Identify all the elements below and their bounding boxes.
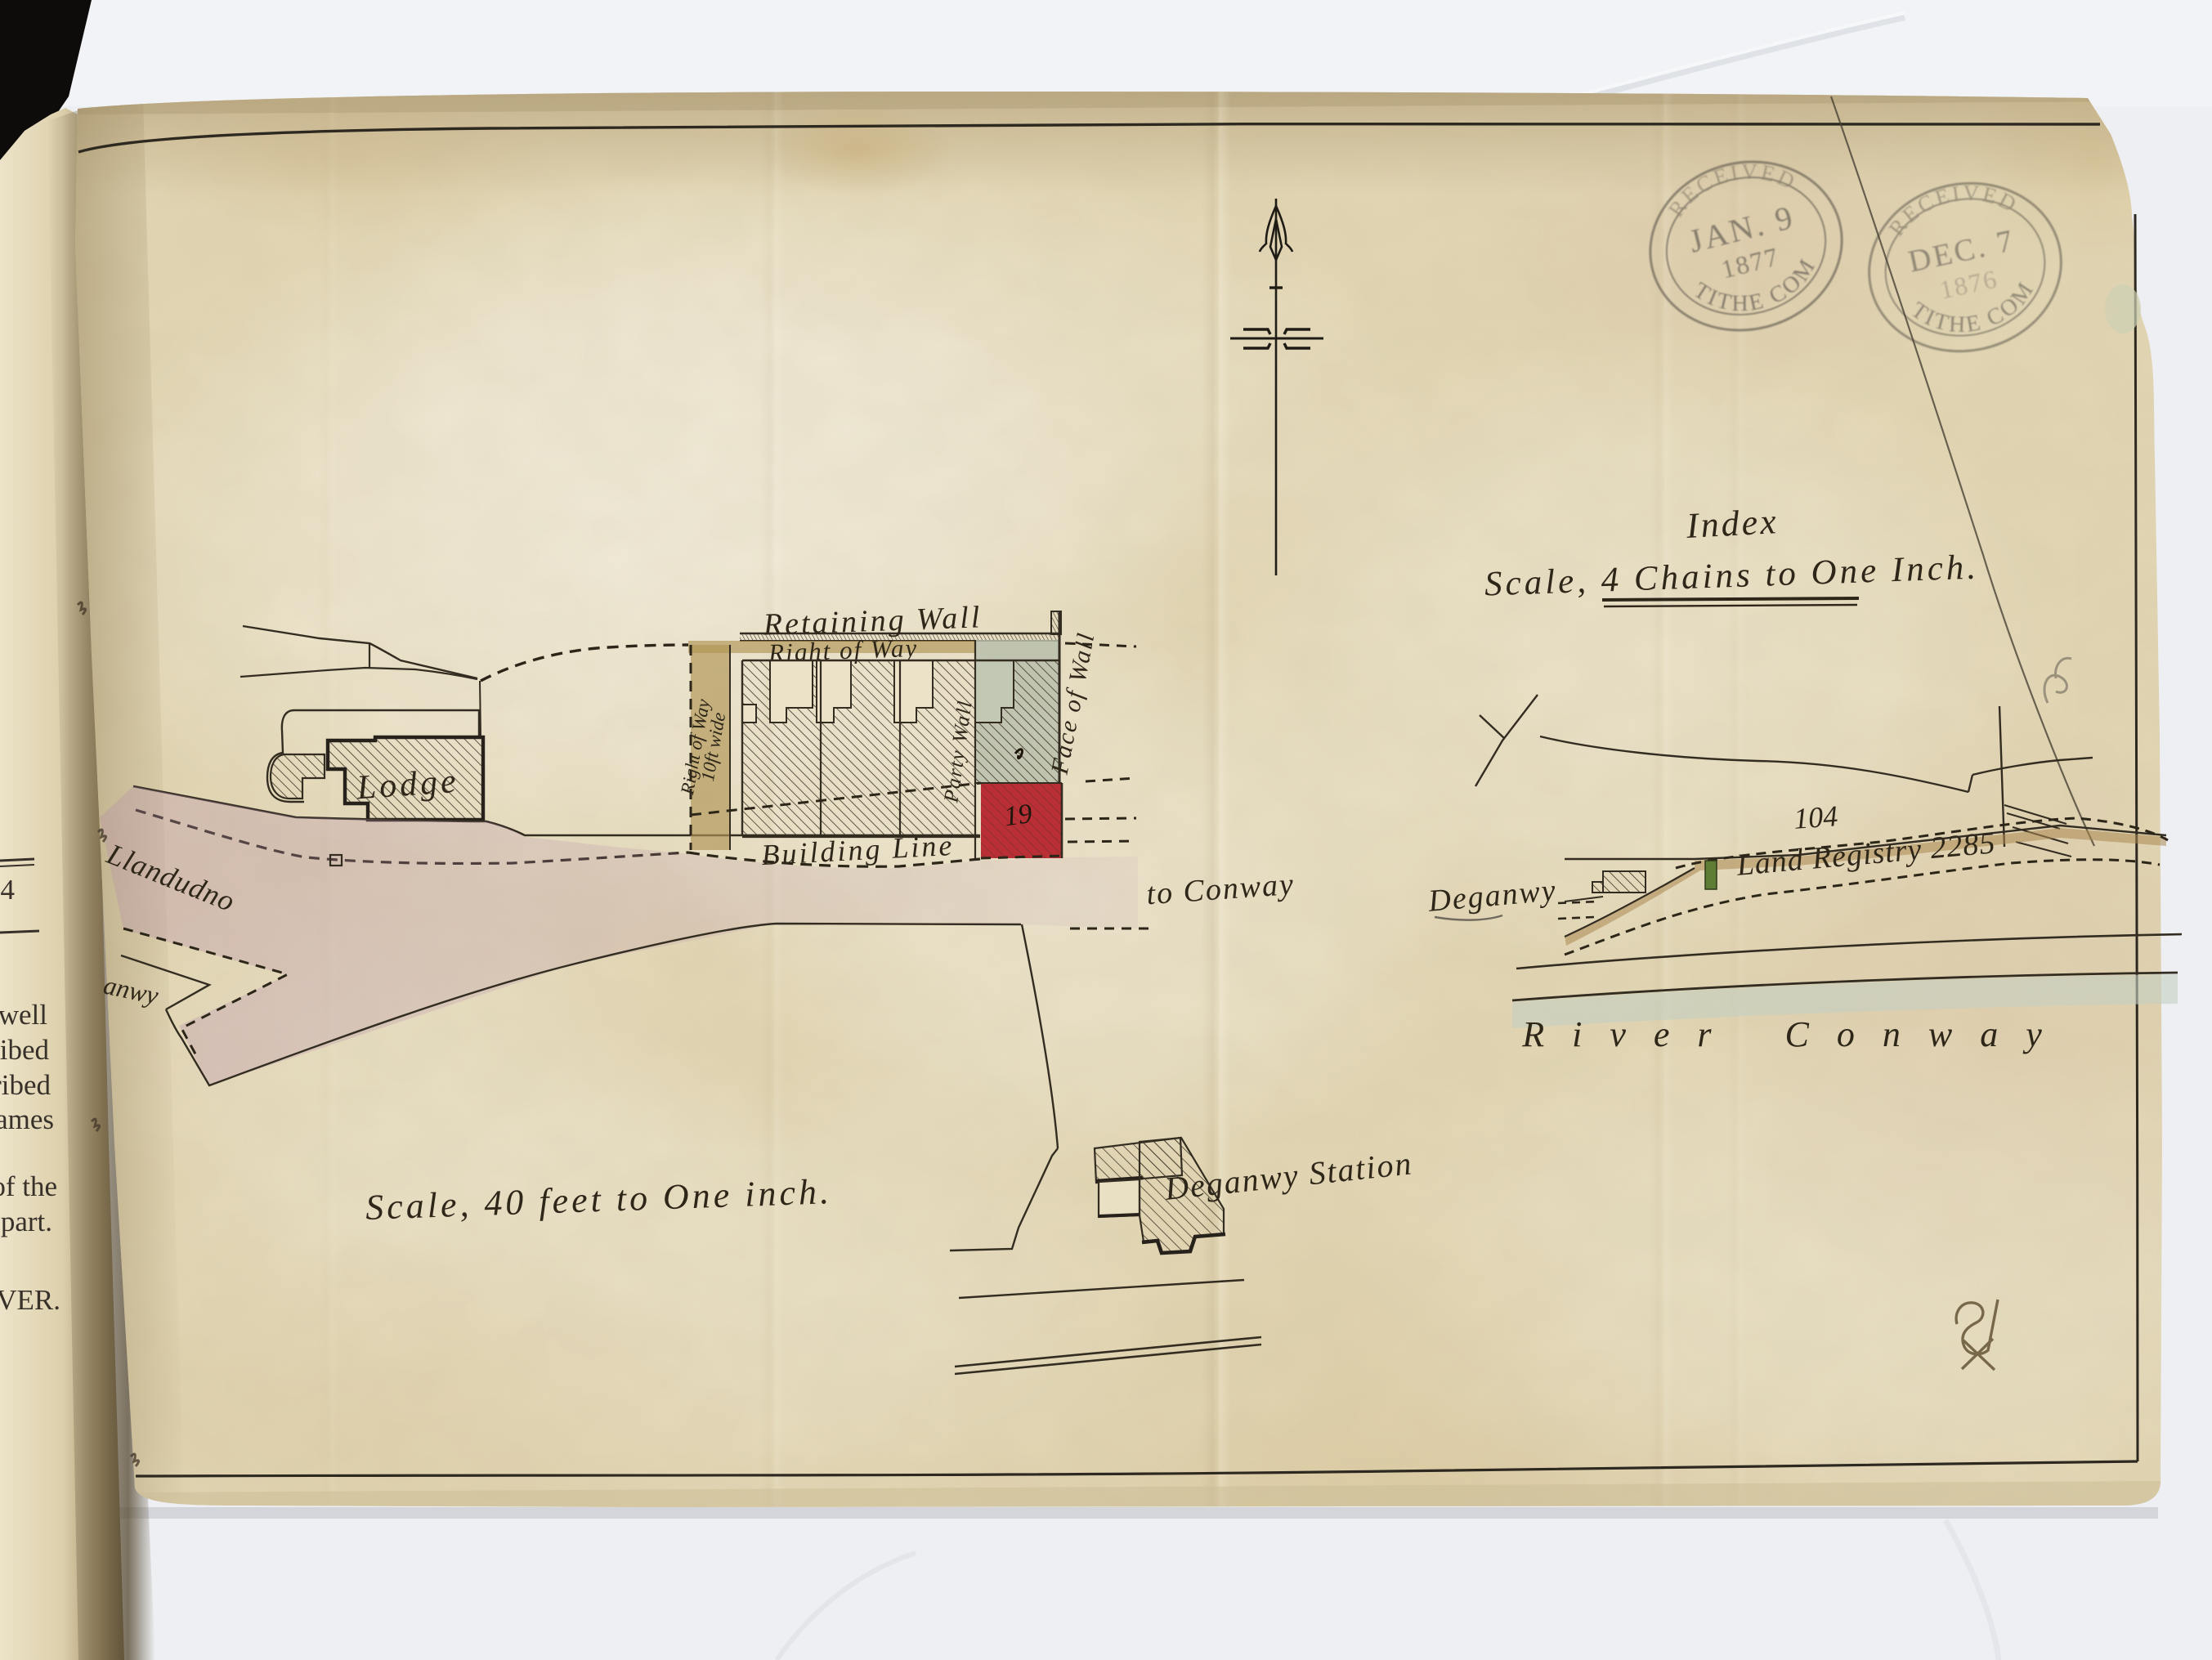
svg-text:19: 19 — [1002, 799, 1034, 832]
svg-text:Lodge: Lodge — [355, 763, 460, 808]
svg-text:e of the: e of the — [0, 1170, 57, 1202]
svg-text:104: 104 — [1793, 799, 1839, 835]
svg-text:part.: part. — [1, 1206, 52, 1237]
svg-text:scribed: scribed — [0, 1034, 49, 1066]
svg-text:River Conway: River Conway — [1521, 1014, 2070, 1054]
svg-text:OVER.: OVER. — [0, 1284, 60, 1316]
svg-text:scribed: scribed — [0, 1069, 51, 1101]
svg-text:axwell: axwell — [0, 999, 47, 1031]
svg-text:Index: Index — [1685, 501, 1780, 546]
svg-text:4: 4 — [1, 874, 16, 906]
svg-text:James: James — [0, 1103, 54, 1135]
